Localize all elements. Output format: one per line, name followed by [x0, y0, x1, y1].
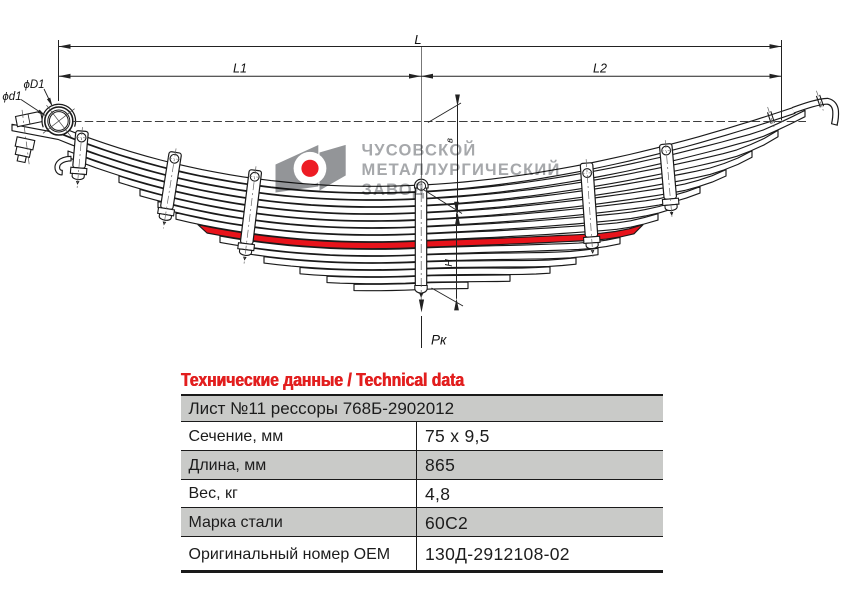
svg-text:МЕТАЛЛУРГИЧЕСКИЙ: МЕТАЛЛУРГИЧЕСКИЙ: [362, 160, 561, 179]
svg-text:H: H: [443, 259, 455, 267]
svg-text:Рк: Рк: [431, 333, 447, 348]
svg-text:L: L: [414, 32, 421, 47]
svg-text:ϕD1: ϕD1: [23, 79, 44, 91]
svg-text:ϕd1: ϕd1: [2, 91, 21, 103]
svg-text:ЧУСОВСКОЙ: ЧУСОВСКОЙ: [362, 141, 477, 160]
svg-text:ЗАВОД: ЗАВОД: [362, 181, 426, 199]
svg-text:L1: L1: [233, 62, 247, 76]
svg-text:L2: L2: [593, 62, 607, 76]
